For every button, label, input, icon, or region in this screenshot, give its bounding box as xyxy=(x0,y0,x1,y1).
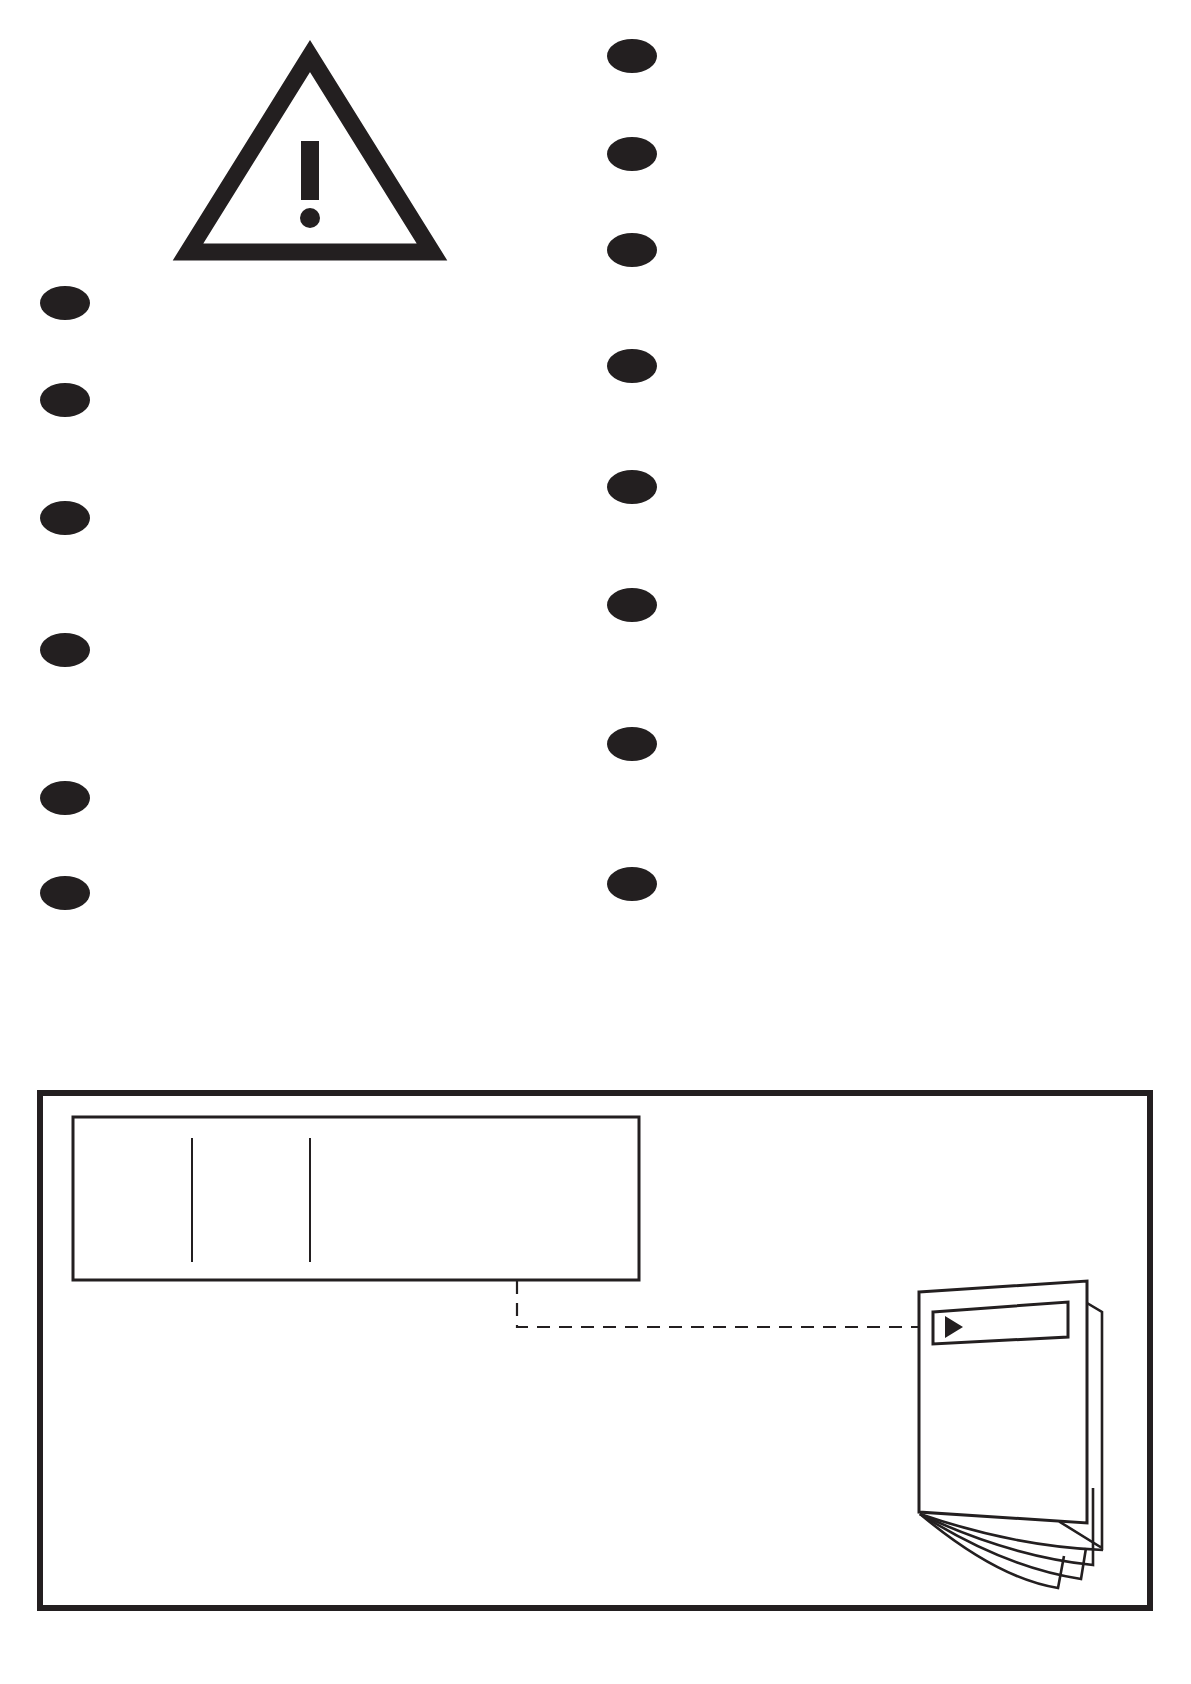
bullet-marker xyxy=(607,39,657,73)
label-field xyxy=(73,1117,639,1280)
bullet-marker xyxy=(607,867,657,901)
bullet-marker xyxy=(40,501,90,535)
warning-triangle-icon xyxy=(188,56,432,252)
bullet-marker xyxy=(607,233,657,267)
bullet-marker xyxy=(40,286,90,320)
bullet-marker xyxy=(40,633,90,667)
exclamation-bar xyxy=(301,141,319,200)
booklet-icon xyxy=(919,1281,1103,1588)
bullet-marker xyxy=(607,588,657,622)
info-panel xyxy=(40,1093,1150,1608)
bullet-marker xyxy=(607,137,657,171)
bullet-marker xyxy=(607,470,657,504)
exclamation-dot xyxy=(300,208,320,228)
bullet-marker xyxy=(607,349,657,383)
bullet-marker xyxy=(40,781,90,815)
bullet-marker xyxy=(607,727,657,761)
bullet-column-right xyxy=(607,39,657,901)
bullet-column-left xyxy=(40,286,90,910)
manual-page xyxy=(0,0,1191,1684)
bullet-marker xyxy=(40,876,90,910)
page-art xyxy=(0,0,1191,1684)
bullet-marker xyxy=(40,383,90,417)
leader-line xyxy=(517,1281,944,1327)
